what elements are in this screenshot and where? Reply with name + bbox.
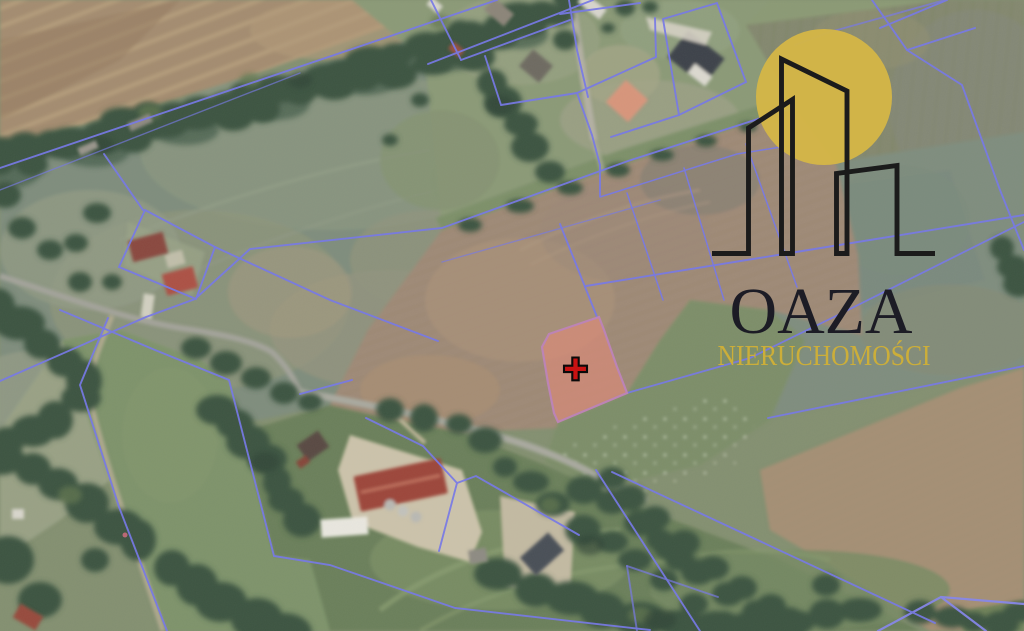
svg-text:NIERUCHOMOŚCI: NIERUCHOMOŚCI bbox=[718, 339, 931, 372]
svg-text:OAZA: OAZA bbox=[730, 275, 913, 348]
